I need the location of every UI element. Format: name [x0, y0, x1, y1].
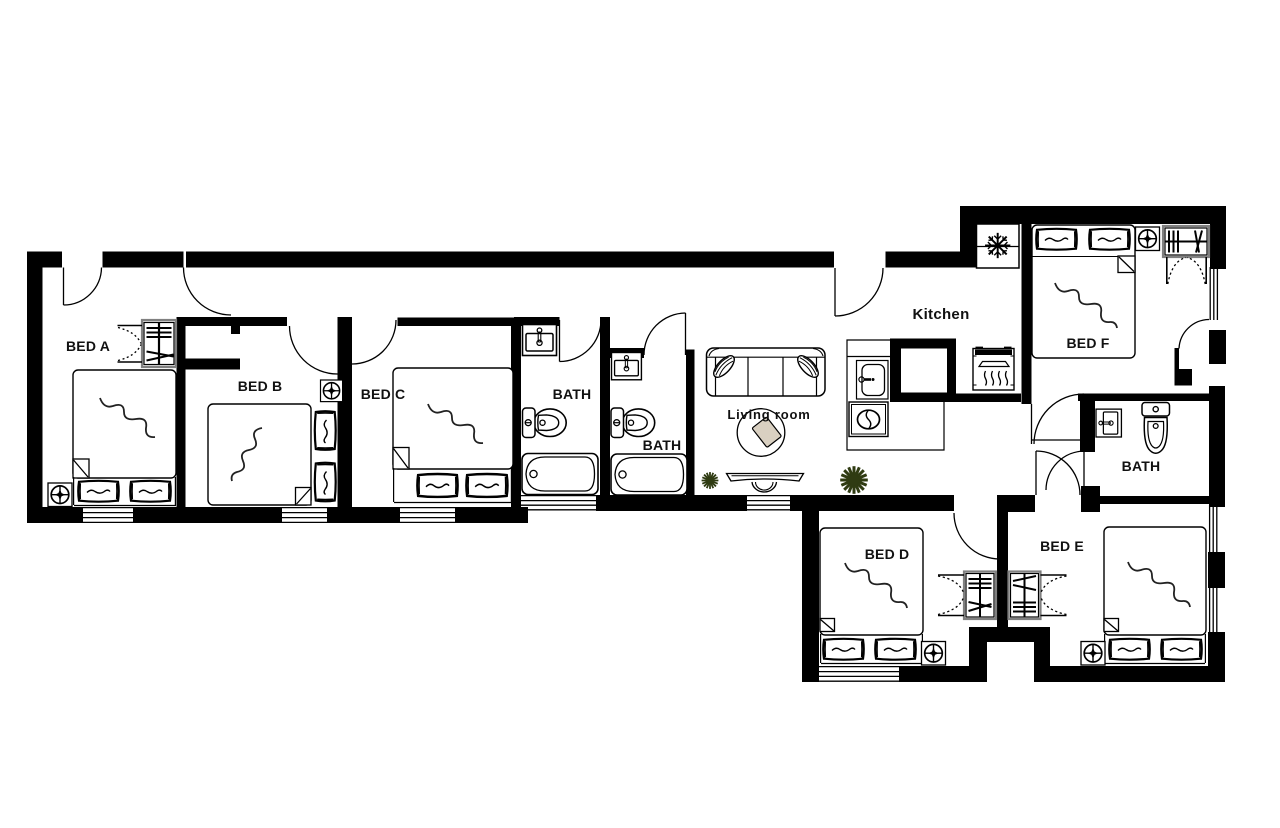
- svg-text:BATH: BATH: [553, 386, 592, 402]
- svg-text:BED E: BED E: [1040, 538, 1084, 554]
- svg-text:BED B: BED B: [238, 378, 283, 394]
- svg-text:BATH: BATH: [1122, 458, 1161, 474]
- svg-text:Living room: Living room: [727, 407, 810, 422]
- svg-text:Kitchen: Kitchen: [912, 306, 969, 323]
- svg-text:BED F: BED F: [1067, 335, 1110, 351]
- svg-text:BATH: BATH: [643, 437, 682, 453]
- svg-text:BED D: BED D: [865, 546, 910, 562]
- svg-text:BED C: BED C: [361, 386, 406, 402]
- svg-text:BED A: BED A: [66, 338, 110, 354]
